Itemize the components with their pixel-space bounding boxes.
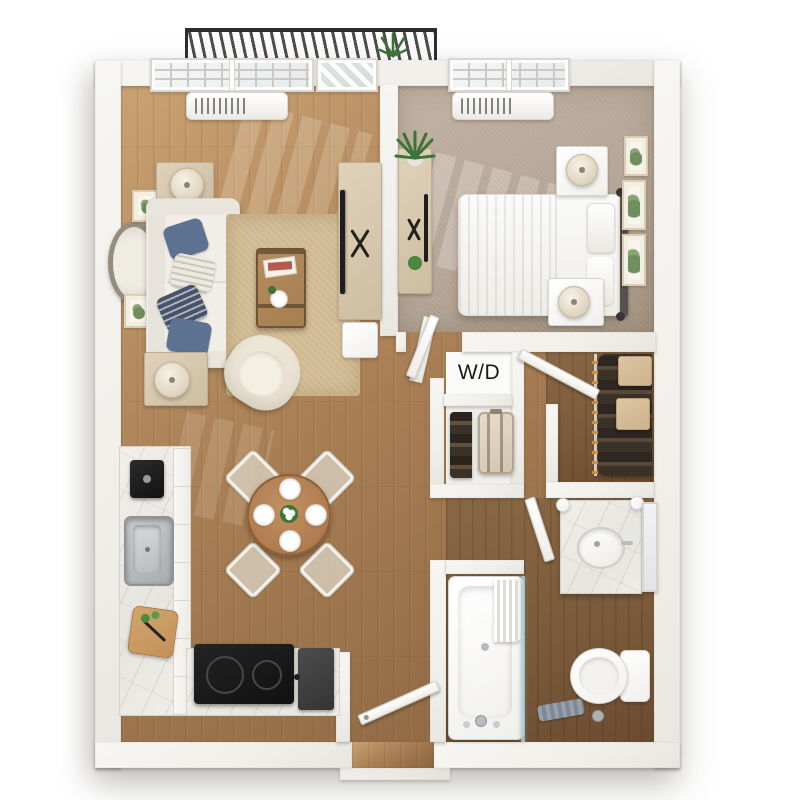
wall-right	[654, 60, 680, 768]
botanical-print	[624, 136, 648, 176]
place-setting	[279, 530, 301, 552]
nightstand-lamp	[558, 286, 590, 318]
wall-living-bedroom	[380, 84, 398, 336]
sofa-arm	[147, 199, 239, 215]
toilet	[570, 648, 652, 702]
wall-wd-bottom	[430, 484, 524, 498]
place-setting	[253, 504, 275, 526]
wall-tubroom-top	[446, 560, 524, 574]
wall-wd-divider	[444, 394, 512, 406]
tub-handle	[493, 721, 500, 728]
folded-clothes-stack	[450, 412, 472, 478]
lime	[140, 613, 150, 623]
window-mullion	[230, 60, 234, 90]
ac-vent-slats	[461, 98, 513, 114]
suitcase-handle	[490, 409, 502, 414]
trunk-coffee-table	[256, 248, 306, 328]
flower-greenery	[268, 286, 276, 294]
cooktop-range	[194, 644, 294, 704]
wall-closet-left	[546, 404, 558, 482]
leaning-mirror	[642, 502, 658, 592]
entry-stoop	[340, 768, 450, 780]
sink-drain	[145, 547, 150, 552]
wall-wd-left	[430, 378, 444, 486]
bathroom-vanity	[560, 500, 642, 594]
burner-small	[252, 660, 282, 690]
vanity-sink	[577, 527, 625, 569]
sink-drain	[594, 541, 600, 547]
round-dining-table	[247, 474, 331, 556]
balcony-plant	[376, 30, 410, 60]
table-lamp	[170, 168, 204, 202]
balcony-door-glass	[321, 63, 373, 87]
armchair-cushion	[231, 343, 293, 405]
botanical-print	[622, 234, 646, 286]
balcony-door	[316, 58, 378, 92]
botanical-print	[622, 180, 646, 230]
tv-stand-legs	[402, 204, 426, 252]
door-knob	[363, 714, 370, 721]
place-setting	[279, 478, 301, 500]
headboard-post	[616, 312, 625, 321]
dark-top-cabinet	[298, 648, 334, 710]
suitcase-strap	[500, 414, 503, 472]
ac-vent-slats	[195, 98, 247, 114]
storage-box	[618, 356, 652, 386]
shower-glass-panel	[521, 576, 525, 742]
burner-large	[206, 656, 244, 694]
storage-basket	[342, 322, 378, 358]
wall-bedroom-doorjamb	[396, 332, 406, 352]
tub-drain	[481, 643, 489, 651]
cutting-board	[127, 605, 179, 659]
bedroom-window	[448, 58, 570, 92]
flower-centerpiece	[280, 505, 298, 523]
small-plant	[408, 256, 422, 270]
suitcase	[478, 412, 514, 474]
wall-bottom-left	[95, 742, 352, 768]
bed-pillow	[587, 203, 615, 253]
toilet-brush	[592, 710, 604, 722]
toilet-bowl	[570, 648, 628, 704]
book-red	[268, 261, 292, 271]
tv-stand-legs	[344, 210, 376, 274]
toilet-seat	[579, 657, 619, 695]
utensil-crock	[294, 674, 300, 680]
living-room-window	[150, 58, 314, 92]
table-lamp	[154, 362, 190, 398]
lime	[151, 611, 160, 620]
coffee-maker-knob	[143, 475, 151, 483]
tub-handle	[463, 721, 470, 728]
wall-bedroom-bottom	[462, 332, 656, 352]
duvet-pleats	[459, 195, 555, 315]
washer-dryer-label: W/D	[446, 352, 512, 394]
wall-bottom-right	[434, 742, 680, 768]
nightstand-lamp	[566, 154, 598, 186]
entry-threshold	[352, 742, 434, 768]
suitcase-strap	[487, 414, 490, 472]
place-setting	[305, 504, 327, 526]
tub-faucet	[475, 715, 487, 727]
wall-tubroom-left	[430, 560, 446, 742]
wall-left	[95, 60, 121, 768]
floor-plan-render: W/D	[0, 0, 800, 800]
coffee-maker	[130, 460, 164, 498]
kitchen-sink	[124, 516, 174, 586]
bedroom-palm-plant	[392, 128, 438, 172]
bedroom-wall-ac-unit	[452, 92, 554, 120]
sink-faucet	[621, 541, 633, 545]
wall-sconce	[556, 498, 570, 512]
storage-box	[616, 398, 650, 430]
shower-curtain	[494, 580, 522, 642]
window-mullion	[507, 60, 511, 90]
living-wall-ac-unit	[186, 92, 288, 120]
clothes-hangers	[592, 356, 598, 474]
